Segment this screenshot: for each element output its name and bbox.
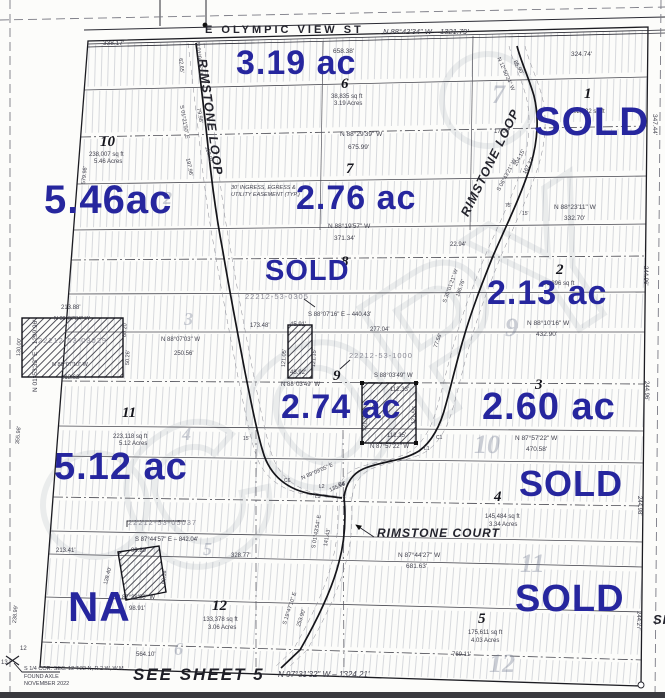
plat-drawing: COPY: [0, 0, 665, 698]
corner-monument-circle: [638, 682, 644, 688]
plat-map-sheet: COPY: [0, 0, 665, 698]
street-node-dot: [203, 23, 208, 28]
image-bottom-band: [0, 692, 665, 698]
